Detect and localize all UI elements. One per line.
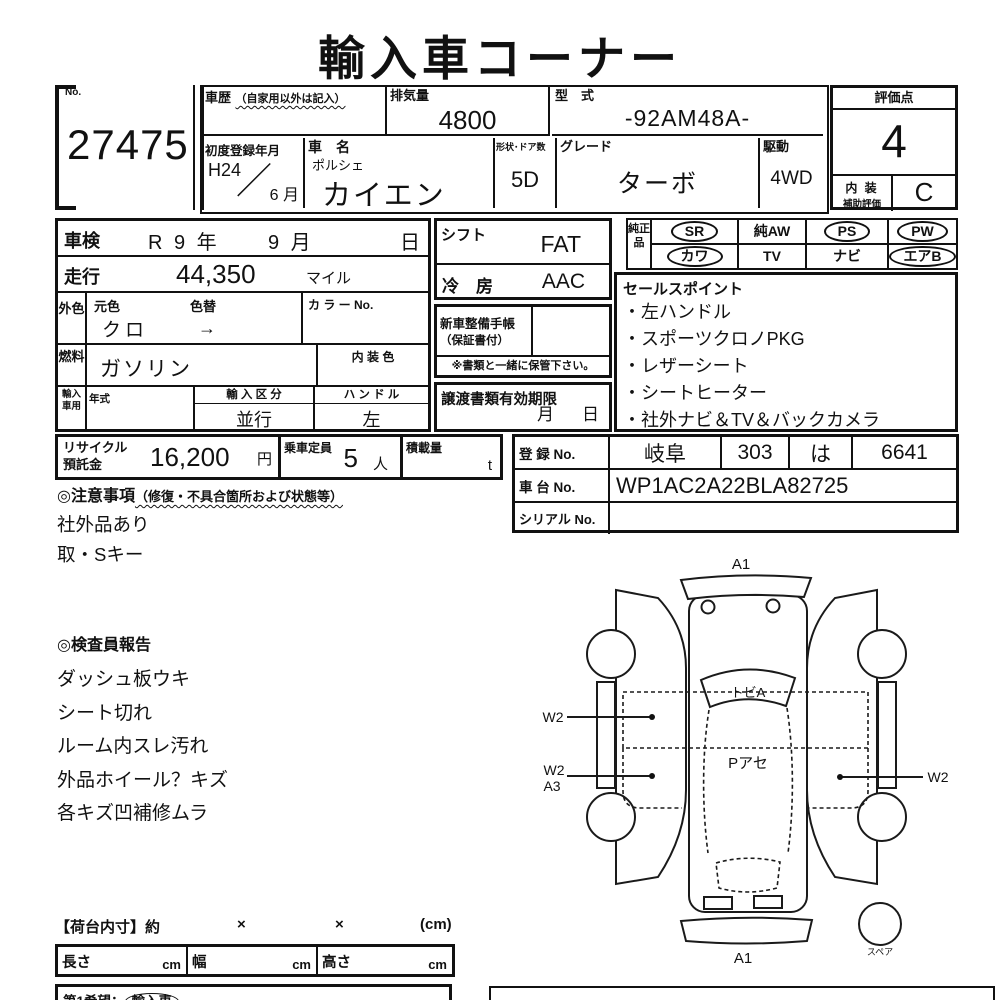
- displacement-cell: 排気量 4800: [387, 87, 550, 136]
- damage-windshield: トビA: [731, 685, 766, 700]
- lot-number-value: 27475: [67, 121, 189, 169]
- service-book-main: 新車整備手帳 （保証書付）: [437, 307, 609, 355]
- lot-number-label: No.: [65, 87, 81, 98]
- model-code-value: -92AM48A-: [555, 105, 820, 132]
- grade-label: グレード: [560, 140, 755, 154]
- cargo-height-cell: 高さ cm: [318, 947, 452, 974]
- genuine-parts-label: 純正品: [628, 220, 652, 268]
- grade-cell: グレード ターボ: [557, 138, 760, 208]
- original-color-value: クロ: [102, 315, 148, 342]
- sales-points-box: セールスポイント 左ハンドル スポーツクロノPKG レザーシート シートヒーター…: [614, 272, 958, 432]
- inspector-item: 各キズ凹補修ムラ: [57, 797, 487, 831]
- equip-sr: SR: [652, 220, 737, 243]
- drive-label: 駆動: [763, 140, 820, 154]
- sales-point: レザーシート: [623, 353, 949, 380]
- equip-airbag: エアB: [889, 245, 956, 268]
- spare-tire: [859, 903, 901, 945]
- inspector-item: 外品ホイール？キズ: [57, 764, 487, 798]
- wish-label: 第1希望：: [63, 994, 125, 1000]
- rear-bumper: [681, 918, 812, 944]
- shaken-label: 車検: [64, 227, 100, 253]
- genuine-parts-box: 純正品 SR 純AW PS PW カワ TV ナビ エアB: [626, 218, 958, 270]
- shift-label: シフト: [441, 224, 486, 245]
- import-class-value: 並行: [195, 406, 313, 432]
- first-wish-box: 第1希望：輸入車: [55, 984, 452, 1000]
- cargo-x1: ×: [237, 916, 246, 933]
- chassis-number: WP1AC2A22BLA82725: [610, 473, 848, 499]
- equip-navi: ナビ: [807, 245, 887, 268]
- damage-a3-rear: A3: [543, 778, 560, 794]
- original-color-label: 元色: [94, 296, 120, 315]
- recycle-label: リサイクル 預託金: [63, 440, 127, 474]
- damage-a1-top: A1: [732, 556, 750, 573]
- color-change-arrow: →: [198, 318, 216, 339]
- equip-ps: PS: [807, 220, 887, 243]
- dot-w2-right: [837, 774, 843, 780]
- displacement-value: 4800: [390, 105, 545, 136]
- recycle-unit: 円: [257, 448, 272, 469]
- equip-tv: TV: [739, 245, 805, 268]
- damage-w2-left: W2: [543, 709, 564, 725]
- lot-number-box: No. 27475: [55, 85, 195, 210]
- cargo-title-line: 【荷台内寸】約 × × (cm): [55, 916, 515, 940]
- body-doors-label: 形状･ドア数: [496, 140, 554, 153]
- color-no-cell: カ ラ ー No.: [301, 293, 428, 343]
- shaken-row: 車検 R 9 年 9 月 日: [58, 221, 428, 257]
- ac-label: 冷 房: [442, 272, 493, 297]
- page-title: 輸入車コーナー: [0, 20, 1000, 89]
- equip-pw: PW: [889, 220, 956, 243]
- cargo-length-cell: 長さ cm: [58, 947, 188, 974]
- recycle-value: 16,200: [150, 442, 230, 473]
- interior-score-value: C: [893, 176, 955, 211]
- history-label: 車歴: [205, 90, 231, 105]
- serial-row: シリアル No.: [515, 503, 956, 534]
- registration-table: 登 録 No. 岐阜 303 は 6641 車 台 No. WP1AC2A22B…: [512, 434, 959, 533]
- registration-label: 登 録 No.: [515, 437, 610, 468]
- registration-class: 303: [722, 437, 790, 468]
- import-class-cell: 輸 入 区 分 並行: [195, 387, 315, 429]
- drive-value: 4WD: [763, 168, 820, 190]
- cargo-width-cell: 幅 cm: [188, 947, 318, 974]
- handle-label: ハ ン ド ル: [315, 387, 428, 404]
- registration-kana: は: [790, 437, 853, 468]
- exterior-color-side-label: 外色: [58, 293, 87, 343]
- shift-row: シフト FAT: [437, 221, 609, 265]
- first-registration-month: 6 月: [270, 181, 299, 205]
- mileage-label: 走行: [64, 263, 100, 289]
- inspector-item: ダッシュ板ウキ: [57, 663, 487, 697]
- interior-color-label: 内 装 色: [352, 350, 395, 364]
- import-class-label: 輸 入 区 分: [195, 387, 313, 404]
- fuel-side-label: 燃料: [58, 345, 87, 385]
- registration-area: 岐阜: [610, 437, 722, 468]
- import-year-cell: 年式: [85, 387, 195, 429]
- cautions-section: ◎注意事項（修復・不具合箇所および状態等） 社外品あり 取・Sキー: [57, 482, 487, 570]
- front-bumper: [681, 575, 811, 599]
- cargo-title: 【荷台内寸】約: [55, 916, 160, 937]
- sales-point: 左ハンドル: [623, 299, 949, 326]
- inspector-item: シート切れ: [57, 697, 487, 731]
- capacity-value: 5: [344, 443, 358, 474]
- wish-value: 輸入車: [125, 993, 180, 1000]
- interior-score-label: 内 装 補助評価: [833, 176, 893, 211]
- cautions-title-line: ◎注意事項（修復・不具合箇所および状態等）: [57, 482, 487, 506]
- body-doors-cell: 形状･ドア数 5D: [495, 138, 557, 208]
- grade-value: ターボ: [560, 164, 755, 200]
- serial-label: シリアル No.: [515, 503, 610, 534]
- chassis-row: 車 台 No. WP1AC2A22BLA82725: [515, 470, 956, 503]
- mileage-unit: マイル: [306, 267, 351, 288]
- mileage-row: 走行 44,350 マイル: [58, 257, 428, 293]
- shaken-day: 日: [400, 226, 420, 255]
- transfer-day: 日: [582, 400, 599, 425]
- damage-w2-rear: W2: [544, 762, 565, 778]
- color-no-label: カ ラ ー No.: [308, 298, 373, 312]
- capacity-label: 乗車定員: [284, 439, 332, 456]
- bottom-right-box: [489, 986, 995, 1000]
- shaken-month: 9 月: [268, 226, 314, 255]
- exterior-color-row: 外色 元色 色替 クロ → カ ラ ー No.: [58, 293, 428, 345]
- caution-item: 取・Sキー: [57, 540, 487, 570]
- registration-number: 6641: [853, 437, 956, 468]
- handle-cell: ハ ン ド ル 左: [315, 387, 428, 429]
- cargo-size-table: 長さ cm 幅 cm 高さ cm: [55, 944, 455, 977]
- spare-label: スペア: [867, 947, 893, 957]
- vehicle-header-table: 車歴 （自家用以外は記入） 排気量 4800 型 式 -92AM48A- 初度登…: [200, 85, 829, 214]
- history-cell: 車歴 （自家用以外は記入）: [202, 87, 387, 136]
- transfer-box: 譲渡書類有効期限 月 日: [434, 382, 612, 432]
- damage-roof: Pアセ: [728, 755, 768, 772]
- ac-value: AAC: [542, 270, 585, 294]
- vehicle-detail-table: 車検 R 9 年 9 月 日 走行 44,350 マイル 外色 元色 色替 クロ…: [55, 218, 431, 432]
- car-model: カイエン: [322, 172, 490, 214]
- sales-point: シートヒーター: [623, 380, 949, 407]
- left-front-wheel: [587, 630, 635, 678]
- cargo-x2: ×: [335, 916, 344, 933]
- fuel-row: 燃料 ガソリン 内 装 色: [58, 345, 428, 387]
- cautions-title: ◎注意事項: [57, 488, 135, 505]
- cargo-unit: (cm): [420, 916, 452, 933]
- first-registration-cell: 初度登録年月 H24 ／ 6 月: [202, 138, 305, 208]
- fuel-value: ガソリン: [100, 353, 192, 383]
- genuine-parts-grid: SR 純AW PS PW カワ TV ナビ エアB: [652, 220, 956, 268]
- load-box: 積載量 t: [400, 434, 503, 480]
- score-box: 評価点 4 内 装 補助評価 C: [830, 85, 958, 210]
- sales-point: 社外ナビ＆TV＆バックカメラ: [623, 407, 949, 434]
- sales-point: スポーツクロノPKG: [623, 326, 949, 353]
- equip-aw: 純AW: [739, 220, 805, 243]
- body-doors-value: 5D: [496, 167, 554, 193]
- auction-sheet: 輸入車コーナー No. 27475 車歴 （自家用以外は記入） 排気量 4800…: [0, 0, 1000, 1000]
- displacement-label: 排気量: [390, 89, 545, 103]
- shift-value: FAT: [541, 231, 581, 258]
- capacity-unit: 人: [373, 453, 388, 474]
- recycle-deposit-box: リサイクル 預託金 16,200 円: [55, 434, 281, 480]
- registration-row: 登 録 No. 岐阜 303 は 6641: [515, 437, 956, 470]
- left-side-panel: [616, 590, 686, 884]
- load-unit: t: [488, 457, 492, 474]
- score-value: 4: [833, 110, 955, 176]
- capacity-box: 乗車定員 5 人: [278, 434, 403, 480]
- slash: ／: [236, 152, 272, 204]
- right-side-panel: [807, 590, 877, 884]
- import-year-label: 年式: [89, 393, 110, 405]
- damage-w2-right: W2: [928, 769, 949, 785]
- service-book-value: [533, 307, 609, 355]
- sales-points-title: セールスポイント: [623, 278, 949, 299]
- equip-leather: カワ: [652, 245, 737, 268]
- load-label: 積載量: [406, 439, 442, 456]
- cautions-note: （修復・不具合箇所および状態等）: [135, 489, 343, 504]
- ac-row: 冷 房 AAC: [437, 265, 609, 299]
- right-front-wheel: [858, 630, 906, 678]
- car-name-label: 車 名: [308, 140, 490, 155]
- left-rocker: [597, 682, 615, 788]
- shift-ac-box: シフト FAT 冷 房 AAC: [434, 218, 612, 300]
- model-code-label: 型 式: [555, 89, 820, 103]
- transfer-month: 月: [537, 400, 554, 425]
- service-book-box: 新車整備手帳 （保証書付） ※書類と一緒に保管下さい。: [434, 304, 612, 378]
- dot-w2-rear: [649, 773, 655, 779]
- drive-cell: 駆動 4WD: [760, 138, 823, 208]
- import-side-label: 輸入車用: [58, 387, 87, 429]
- mileage-value: 44,350: [176, 259, 256, 290]
- car-name-cell: 車 名 ポルシェ カイエン: [305, 138, 495, 208]
- inspector-report-section: ◎検査員報告 ダッシュ板ウキ シート切れ ルーム内スレ汚れ 外品ホイール？キズ …: [57, 631, 487, 831]
- chassis-label: 車 台 No.: [515, 470, 610, 501]
- right-rocker: [878, 682, 896, 788]
- left-rear-wheel: [587, 793, 635, 841]
- dot-w2-left: [649, 714, 655, 720]
- model-code-cell: 型 式 -92AM48A-: [552, 87, 823, 136]
- car-body: [689, 595, 807, 912]
- score-label: 評価点: [833, 88, 955, 110]
- inspector-item: ルーム内スレ汚れ: [57, 730, 487, 764]
- shaken-year: R 9 年: [148, 226, 220, 255]
- service-book-label: 新車整備手帳 （保証書付）: [437, 307, 533, 355]
- caution-item: 社外品あり: [57, 510, 487, 540]
- damage-diagram: スペア A1 トビA Pアセ A1 W2 W2 A3 W2: [520, 553, 1000, 977]
- history-note: （自家用以外は記入）: [235, 93, 345, 105]
- color-change-label: 色替: [190, 296, 216, 315]
- damage-a1-bottom: A1: [734, 950, 752, 967]
- import-row: 輸入車用 年式 輸 入 区 分 並行 ハ ン ド ル 左: [58, 387, 428, 429]
- inspector-title: ◎検査員報告: [57, 631, 487, 655]
- interior-color-cell: 内 装 色: [316, 345, 428, 385]
- handle-value: 左: [315, 406, 428, 432]
- keep-note: ※書類と一緒に保管下さい。: [437, 355, 609, 377]
- right-rear-wheel: [858, 793, 906, 841]
